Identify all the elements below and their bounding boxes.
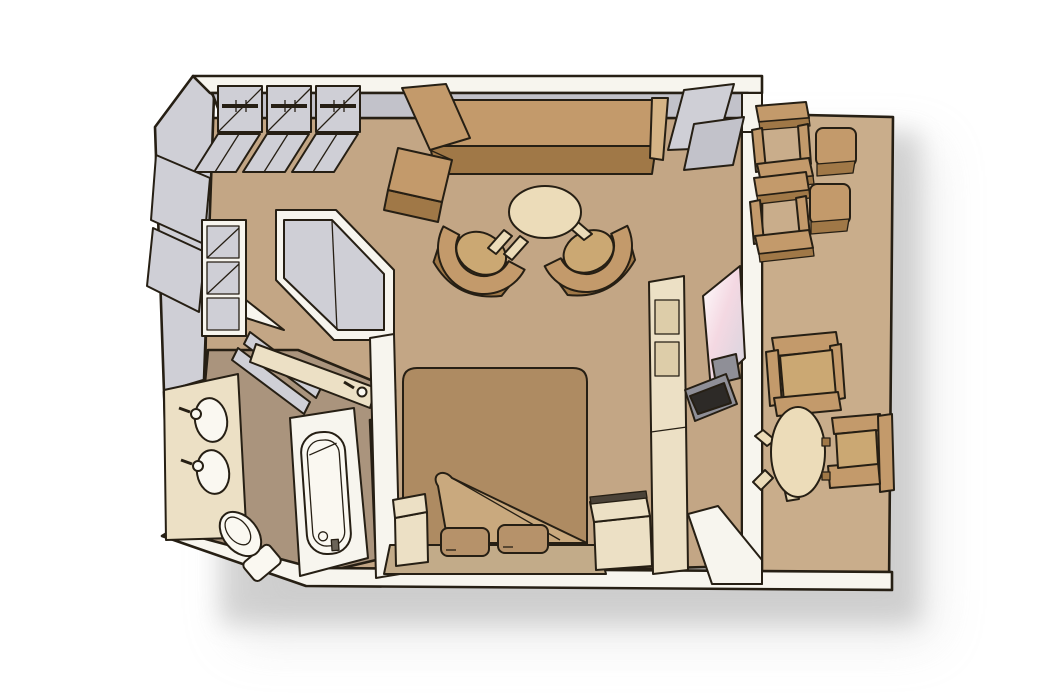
chair-foot — [822, 438, 830, 446]
floor-plan — [0, 0, 1044, 696]
closet-bay-3 — [316, 86, 360, 132]
table-top — [771, 407, 825, 497]
dining-chair-1 — [766, 332, 845, 416]
shelf-cell — [207, 298, 239, 330]
tv-cabinet — [649, 276, 688, 574]
nightstand-front — [594, 516, 652, 570]
tub-tap — [331, 539, 339, 550]
chair-seat — [836, 430, 878, 468]
side-table-2 — [810, 184, 850, 234]
side-table-edge — [811, 219, 849, 234]
sofa-front — [430, 146, 656, 174]
chair-foot — [822, 472, 830, 480]
table-top — [509, 186, 581, 238]
faucet-icon — [193, 461, 203, 471]
tub-drain — [318, 532, 328, 542]
pillow — [498, 525, 548, 553]
bathtub — [300, 431, 352, 556]
floor-plan-svg — [0, 0, 1044, 696]
side-table-1 — [816, 128, 856, 176]
pillow — [441, 528, 489, 556]
faucet-icon — [191, 409, 201, 419]
nightstand-front — [395, 512, 428, 566]
side-table-edge — [817, 161, 855, 176]
side-table-top — [816, 128, 856, 166]
cabinet-niche — [655, 300, 679, 334]
nightstand-right — [590, 491, 652, 570]
closet-bay-1 — [218, 86, 262, 132]
nightstand-left — [393, 494, 428, 566]
faucet-icon — [358, 388, 367, 397]
cabinet-niche — [655, 342, 679, 376]
closet-bay-2 — [267, 86, 311, 132]
side-table-top — [810, 184, 850, 224]
